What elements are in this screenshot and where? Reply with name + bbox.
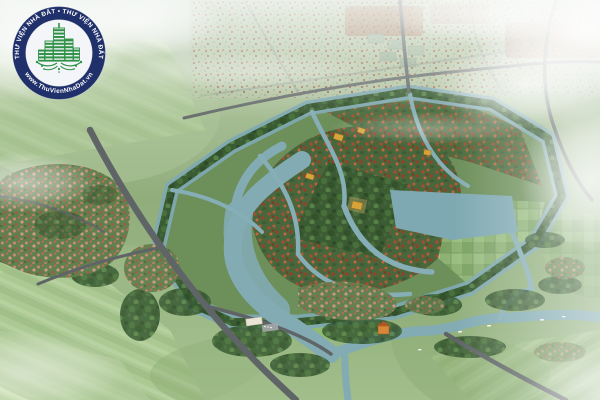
cloud-wisp [330, 112, 530, 144]
scene-svg: THƯ VIỆN NHÀ ĐẤT • THƯ VIỆN NHÀ ĐẤT www.… [0, 0, 600, 400]
south-canal [345, 348, 348, 400]
tree-cluster [120, 289, 160, 341]
tree-cluster [34, 211, 86, 239]
tree-cluster [270, 353, 330, 377]
village-cluster [405, 296, 445, 314]
village-cluster [124, 244, 180, 292]
tree-cluster [322, 318, 402, 344]
boat [418, 349, 422, 350]
aerial-render-image: THƯ VIỆN NHÀ ĐẤT • THƯ VIỆN NHÀ ĐẤT www.… [0, 0, 600, 400]
cloud-wisp [120, 52, 380, 92]
